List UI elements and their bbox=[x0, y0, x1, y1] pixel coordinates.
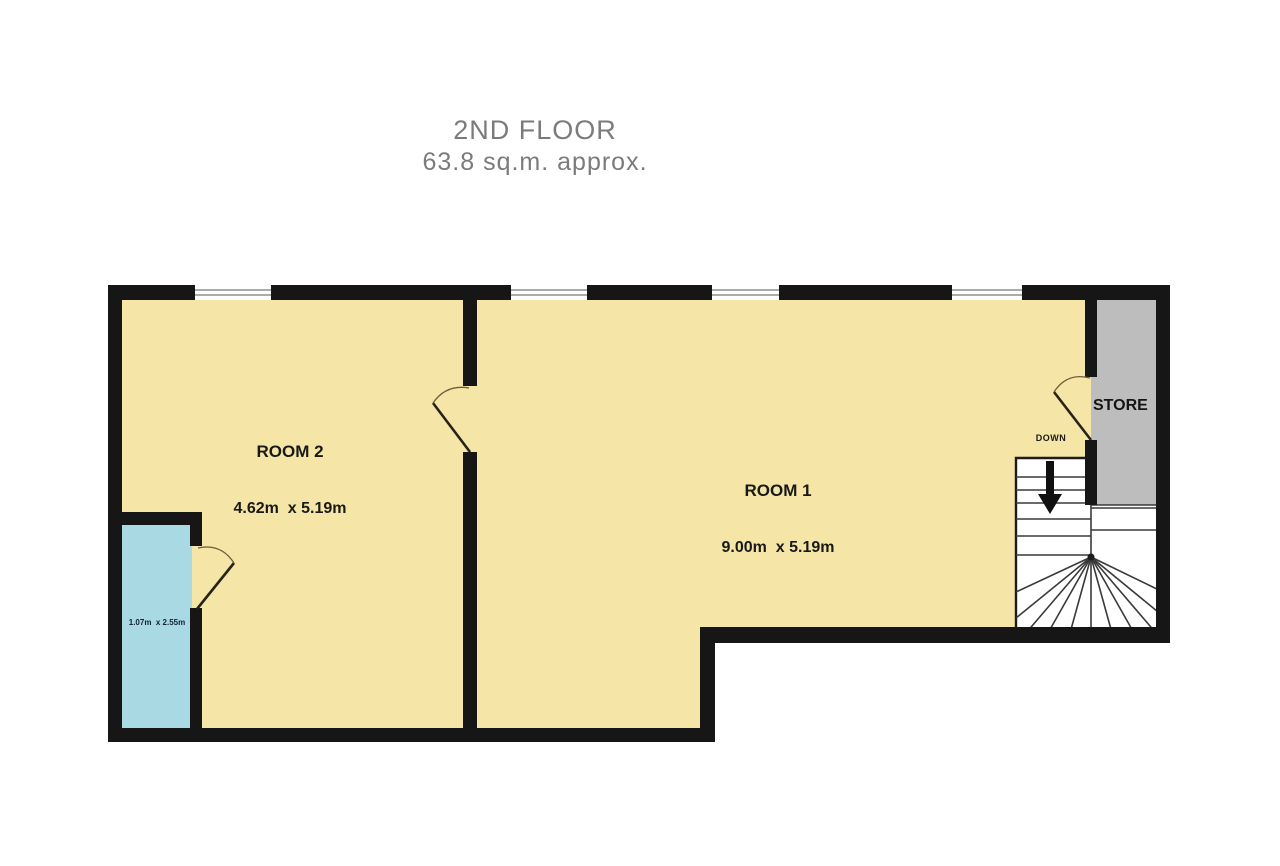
room1-dimensions: 9.00m x 5.19m bbox=[678, 537, 878, 558]
window-1 bbox=[195, 285, 271, 300]
stairs-down-label: DOWN bbox=[1028, 433, 1074, 443]
room1-label: ROOM 1 9.00m x 5.19m bbox=[678, 444, 878, 576]
wall-store-upper bbox=[1085, 292, 1097, 377]
wall-right bbox=[1156, 285, 1170, 643]
floor-title-area: 63.8 sq.m. approx. bbox=[235, 146, 835, 178]
wall-wet-top bbox=[108, 512, 200, 525]
wall-partition-upper bbox=[463, 292, 477, 386]
window-4 bbox=[952, 285, 1022, 300]
wall-step bbox=[700, 627, 715, 742]
store-label: STORE bbox=[1093, 397, 1159, 415]
window-3 bbox=[712, 285, 779, 300]
wall-bottom-right bbox=[700, 627, 1170, 643]
room2-name: ROOM 2 bbox=[190, 441, 390, 462]
wall-partition-lower bbox=[463, 452, 477, 742]
floor-title-name: 2ND FLOOR bbox=[235, 114, 835, 146]
room2-label: ROOM 2 4.62m x 5.19m bbox=[190, 405, 390, 537]
room1-name: ROOM 1 bbox=[678, 480, 878, 501]
wet-room-dimensions: 1.07m x 2.55m bbox=[118, 618, 196, 627]
wall-wet-right-lower bbox=[190, 608, 202, 742]
wall-store-lower bbox=[1085, 440, 1097, 505]
room2-dimensions: 4.62m x 5.19m bbox=[190, 498, 390, 519]
floor-title: 2ND FLOOR 63.8 sq.m. approx. bbox=[235, 114, 835, 178]
window-2 bbox=[511, 285, 587, 300]
